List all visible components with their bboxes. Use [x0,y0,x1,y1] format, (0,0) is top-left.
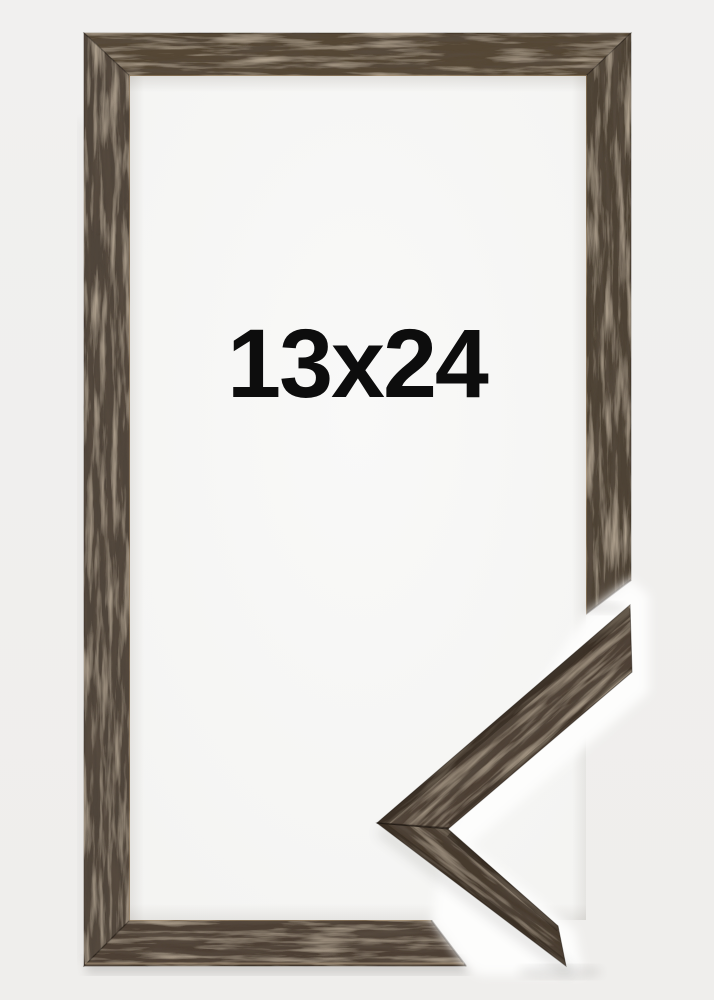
frame-photo-canvas: 13x24 [0,0,714,1000]
frame-bar-right [586,33,631,614]
size-label: 13x24 [227,309,489,418]
frame-bar-top [84,33,631,76]
frame-bar-bottom [84,920,466,966]
frame-bar-left [84,33,130,966]
product-photo-frame-13x24: 13x24 [0,0,714,1000]
